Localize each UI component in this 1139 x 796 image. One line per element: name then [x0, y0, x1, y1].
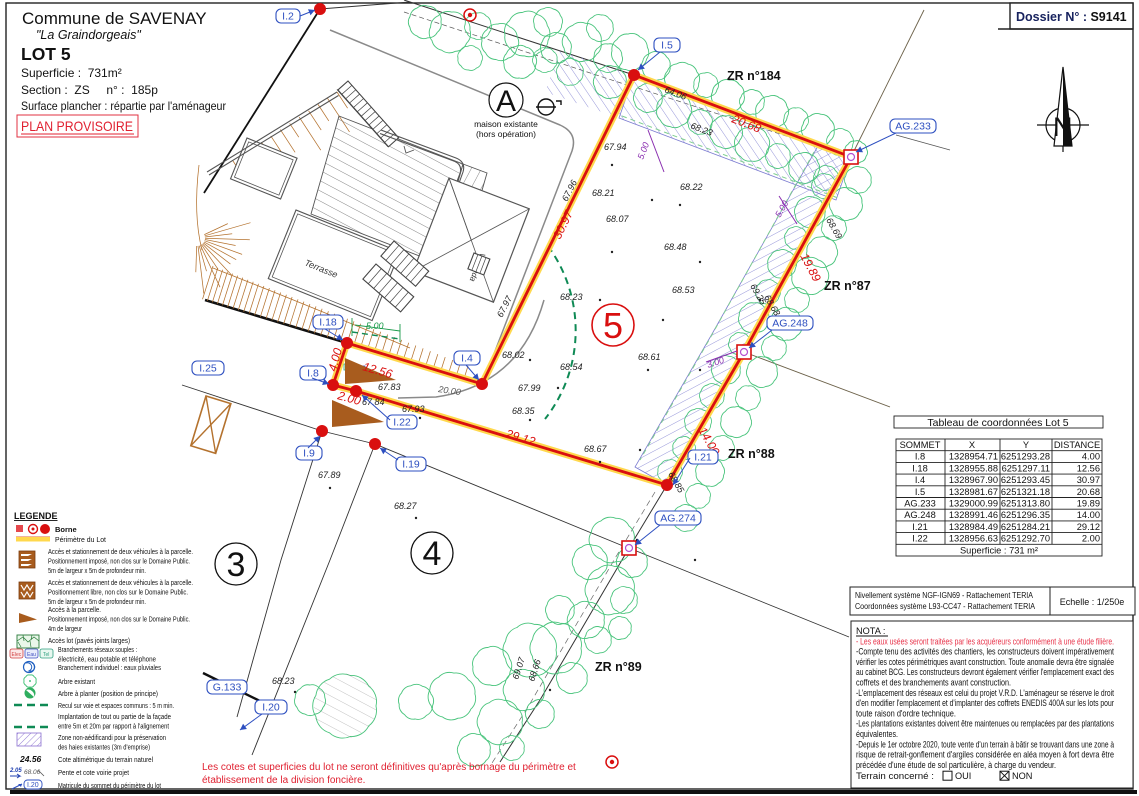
svg-text:I.2: I.2: [282, 11, 294, 23]
svg-text:20.68: 20.68: [1077, 487, 1100, 497]
svg-text:29.12: 29.12: [1077, 522, 1100, 532]
svg-text:4.00: 4.00: [1082, 452, 1100, 462]
svg-text:12.56: 12.56: [1077, 463, 1100, 473]
svg-text:équivalentes.: équivalentes.: [856, 729, 898, 739]
svg-text:-Les plantations existantes do: -Les plantations existantes doivent être…: [856, 719, 1114, 729]
svg-text:Branchements réseaux souples :: Branchements réseaux souples :: [58, 647, 137, 654]
svg-text:14.00: 14.00: [1077, 510, 1100, 520]
svg-text:Terrain concerné :: Terrain concerné :: [856, 771, 934, 781]
svg-text:68.21: 68.21: [592, 188, 615, 198]
svg-text:Les cotes et superficies du lo: Les cotes et superficies du lot ne seron…: [202, 762, 576, 773]
svg-text:68.67: 68.67: [584, 444, 608, 454]
svg-text:AG.248: AG.248: [772, 318, 808, 330]
svg-text:électricité, eau potable et té: électricité, eau potable et téléphone: [58, 657, 156, 664]
svg-text:AG.233: AG.233: [895, 121, 931, 133]
svg-text:68.61: 68.61: [638, 352, 661, 362]
svg-text:Accès lot (pavés joints larges: Accès lot (pavés joints larges): [48, 638, 130, 645]
svg-text:ZR n°184: ZR n°184: [727, 69, 781, 83]
svg-text:68.02: 68.02: [502, 350, 525, 360]
svg-text:6251293.28: 6251293.28: [1001, 452, 1050, 462]
svg-text:5m de largeur x 5m de profonde: 5m de largeur x 5m de profondeur min.: [48, 599, 146, 606]
svg-text:4: 4: [423, 535, 442, 573]
svg-text:6251292.70: 6251292.70: [1001, 534, 1050, 544]
svg-text:Positionnement libre, non clos: Positionnement libre, non clos sur le Do…: [48, 590, 188, 597]
svg-text:I.8: I.8: [915, 452, 925, 462]
svg-text:N: N: [1053, 112, 1073, 142]
svg-text:Nivellement système NGF-IGN69: Nivellement système NGF-IGN69 - Rattache…: [855, 590, 1033, 600]
svg-text:67.94: 67.94: [604, 142, 627, 152]
svg-text:6251284.21: 6251284.21: [1001, 522, 1050, 532]
svg-text:SOMMET: SOMMET: [900, 440, 941, 450]
svg-text:68.23: 68.23: [560, 292, 583, 302]
svg-text:Arbre existant: Arbre existant: [58, 679, 95, 686]
svg-text:Superficie : 731 m²: Superficie : 731 m²: [960, 545, 1038, 555]
svg-text:-L'emplacement des réseaux est: -L'emplacement des réseaux est celui du …: [856, 688, 1114, 698]
svg-text:67.93: 67.93: [402, 404, 425, 414]
svg-text:Accès et stationnement de deux: Accès et stationnement de deux véhicules…: [48, 549, 193, 556]
svg-text:ZR n°87: ZR n°87: [824, 279, 871, 293]
svg-text:ZR n°88: ZR n°88: [728, 447, 775, 461]
svg-text:68.54: 68.54: [560, 362, 583, 372]
svg-text:Pente et cote voirie projet: Pente et cote voirie projet: [58, 770, 129, 777]
svg-text:vérifier les cotes périmétriqu: vérifier les cotes périmétriques avant c…: [856, 657, 1114, 667]
svg-text:5.00: 5.00: [366, 321, 384, 331]
svg-text:Accès et stationnement de deux: Accès et stationnement de deux véhicules…: [48, 580, 193, 587]
svg-text:précédée d'une étude de sol pa: précédée d'une étude de sol particulière…: [856, 760, 1056, 770]
svg-text:68.35: 68.35: [512, 406, 536, 416]
svg-text:1328954.71: 1328954.71: [949, 452, 998, 462]
svg-text:5m de largeur x 5m de profonde: 5m de largeur x 5m de profondeur min.: [48, 568, 146, 575]
svg-text:Cote altimétrique du terrain n: Cote altimétrique du terrain naturel: [58, 757, 153, 764]
svg-text:ZR n°89: ZR n°89: [595, 660, 642, 674]
svg-text:1328967.90: 1328967.90: [949, 475, 998, 485]
svg-text:X: X: [969, 440, 975, 450]
svg-text:68.53: 68.53: [672, 285, 695, 295]
svg-text:68.07: 68.07: [606, 214, 630, 224]
svg-text:2.05: 2.05: [9, 768, 22, 774]
svg-text:Tel: Tel: [43, 652, 49, 658]
svg-text:3: 3: [227, 546, 246, 584]
svg-text:I.4: I.4: [915, 475, 925, 485]
svg-text:68.48: 68.48: [664, 242, 687, 252]
svg-text:Commune de SAVENAY: Commune de SAVENAY: [22, 9, 207, 28]
svg-text:I.20: I.20: [27, 782, 39, 789]
svg-text:I.8: I.8: [307, 368, 319, 380]
svg-text:6251321.18: 6251321.18: [1001, 487, 1050, 497]
svg-text:Accès à la parcelle.: Accès à la parcelle.: [48, 607, 101, 614]
svg-text:"La Graindorgeais": "La Graindorgeais": [36, 28, 141, 42]
svg-text:68.27: 68.27: [394, 501, 418, 511]
svg-text:des haies existantes (3m d'emp: des haies existantes (3m d'emprise): [58, 745, 150, 752]
svg-text:(hors opération): (hors opération): [476, 129, 536, 139]
svg-text:I.9: I.9: [303, 448, 315, 460]
svg-text:1328991.46: 1328991.46: [949, 510, 998, 520]
svg-text:24.56: 24.56: [19, 754, 42, 764]
svg-text:I.20: I.20: [262, 702, 280, 714]
svg-text:LEGENDE: LEGENDE: [14, 511, 58, 521]
svg-text:67.99: 67.99: [518, 383, 541, 393]
svg-text:Y: Y: [1023, 440, 1029, 450]
svg-text:Surface plancher : répartie pa: Surface plancher : répartie par l'aménag…: [21, 99, 226, 113]
svg-text:Positionnement imposé, non clo: Positionnement imposé, non clos sur le D…: [48, 559, 190, 566]
svg-text:4m de largeur: 4m de largeur: [48, 626, 83, 633]
svg-text:6251297.11: 6251297.11: [1002, 463, 1050, 473]
svg-text:maison existante: maison existante: [474, 119, 538, 129]
svg-text:I.4: I.4: [461, 353, 473, 365]
svg-text:I.19: I.19: [402, 459, 420, 471]
svg-text:6251293.45: 6251293.45: [1001, 475, 1050, 485]
svg-text:I.18: I.18: [319, 317, 337, 329]
svg-text:6251296.35: 6251296.35: [1001, 510, 1050, 520]
svg-text:NOTA :: NOTA :: [856, 626, 885, 636]
svg-text:LOT 5: LOT 5: [21, 44, 71, 64]
svg-text:Coordonnées système L93-CC47: Coordonnées système L93-CC47 - Rattachem…: [855, 601, 1035, 611]
svg-text:I.18: I.18: [912, 463, 928, 473]
svg-text:Borne: Borne: [55, 525, 77, 534]
svg-text:I.5: I.5: [915, 487, 925, 497]
svg-text:-Depuis le 1er octobre 2020, t: -Depuis le 1er octobre 2020, toute vente…: [856, 739, 1115, 749]
svg-text:risque de retrait-gonflement d: risque de retrait-gonflement d'argiles c…: [856, 750, 1114, 760]
svg-text:1328984.49: 1328984.49: [949, 522, 998, 532]
svg-text:Recul sur voie et espaces comm: Recul sur voie et espaces communs : 5 m …: [58, 703, 174, 710]
svg-text:Tableau de coordonnées Lot 5: Tableau de coordonnées Lot 5: [927, 417, 1068, 429]
svg-text:68.23: 68.23: [272, 676, 295, 686]
svg-text:Superficie : 731m²: Superficie : 731m²: [21, 66, 122, 80]
svg-text:5: 5: [603, 305, 623, 346]
svg-text:AG.274: AG.274: [660, 513, 696, 525]
svg-text:Dossier N° : S9141: Dossier N° : S9141: [1016, 10, 1127, 24]
svg-text:coffrets et des branchements a: coffrets et des branchements avant const…: [856, 678, 1011, 688]
svg-text:68.22: 68.22: [680, 182, 703, 192]
svg-text:A: A: [496, 85, 516, 118]
svg-text:AG.248: AG.248: [904, 510, 936, 520]
svg-text:d'en modifier l'emplacement et: d'en modifier l'emplacement et d'implant…: [856, 698, 1114, 708]
svg-text:Branchement individuel : eaux: Branchement individuel : eaux pluviales: [58, 665, 161, 672]
svg-text:Elec: Elec: [12, 652, 22, 658]
svg-text:6251313.80: 6251313.80: [1001, 499, 1050, 509]
svg-text:G.133: G.133: [213, 682, 242, 694]
svg-text:I.5: I.5: [661, 40, 673, 52]
svg-text:Périmètre du Lot: Périmètre du Lot: [55, 537, 106, 544]
svg-text:Echelle : 1/250e: Echelle : 1/250e: [1060, 597, 1125, 607]
svg-text:- Les eaux usées seront traité: - Les eaux usées seront traitées par les…: [856, 636, 1114, 646]
svg-text:-Compte tenu des activités des: -Compte tenu des activités des chantiers…: [856, 647, 1114, 657]
svg-text:I.25: I.25: [199, 363, 217, 375]
svg-text:DISTANCE: DISTANCE: [1054, 440, 1100, 450]
svg-text:30.97: 30.97: [1077, 475, 1100, 485]
svg-text:entre 5m et 20m par rapport à: entre 5m et 20m par rapport à l'aligneme…: [58, 724, 169, 731]
svg-text:19.89: 19.89: [1077, 499, 1100, 509]
svg-text:NON: NON: [1012, 771, 1032, 781]
svg-text:67.89: 67.89: [318, 470, 341, 480]
svg-text:Positionnement imposé, non clo: Positionnement imposé, non clos sur le D…: [48, 617, 190, 624]
svg-text:PLAN PROVISOIRE: PLAN PROVISOIRE: [21, 118, 133, 134]
svg-text:67.83: 67.83: [378, 382, 401, 392]
svg-text:Zone non-aédificandi pour la p: Zone non-aédificandi pour la préservatio…: [58, 735, 166, 742]
svg-text:I.22: I.22: [912, 534, 928, 544]
svg-text:1328956.63: 1328956.63: [949, 534, 998, 544]
svg-text:AG.233: AG.233: [904, 499, 936, 509]
svg-text:établissement de la division f: établissement de la division foncière.: [202, 775, 365, 786]
svg-text:2.00: 2.00: [1082, 534, 1100, 544]
svg-text:Implantation de tout ou partie: Implantation de tout ou partie de la faç…: [58, 714, 171, 721]
svg-text:au cabinet BCG. Les constructe: au cabinet BCG. Les constructeurs devron…: [856, 667, 1114, 677]
svg-text:1328981.67: 1328981.67: [949, 487, 998, 497]
svg-text:toute raison d'ordre technique: toute raison d'ordre technique.: [856, 708, 956, 718]
svg-text:Section : ZS n° : 185p: Section : ZS n° : 185p: [21, 83, 158, 97]
svg-text:1329000.99: 1329000.99: [949, 499, 998, 509]
svg-text:I.22: I.22: [393, 417, 411, 429]
svg-text:I.21: I.21: [912, 522, 928, 532]
svg-text:Arbre à planter (position de p: Arbre à planter (position de principe): [58, 691, 158, 698]
svg-text:I.21: I.21: [694, 452, 712, 464]
svg-text:1328955.88: 1328955.88: [949, 463, 998, 473]
svg-text:OUI: OUI: [955, 771, 971, 781]
svg-text:Matricule du sommet du périmèt: Matricule du sommet du périmètre du lot: [58, 783, 161, 790]
svg-text:Eau: Eau: [27, 652, 36, 658]
